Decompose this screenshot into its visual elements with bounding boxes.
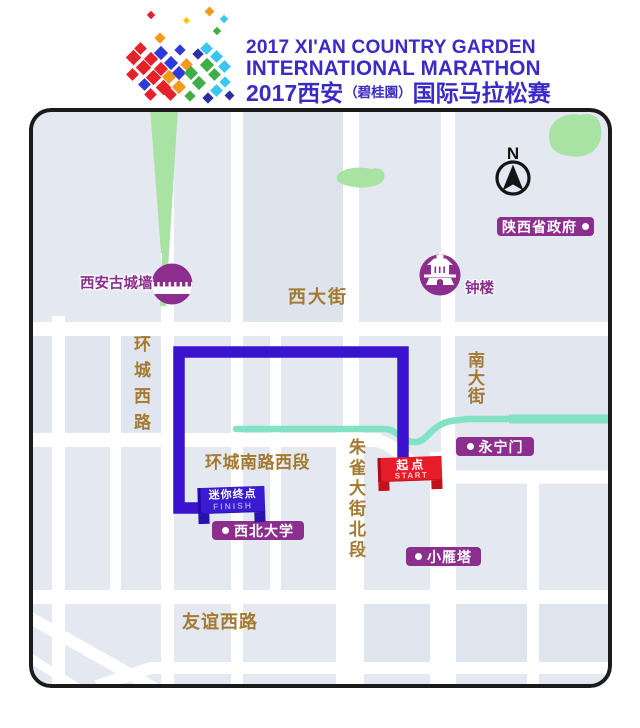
course-map: N xyxy=(29,108,612,688)
logo-diamond xyxy=(174,44,185,55)
park-blob-large xyxy=(549,114,601,157)
badge-label: 陕西省政府 xyxy=(502,217,577,237)
logo-diamond xyxy=(154,32,165,43)
title-cn-sponsor: （碧桂園） xyxy=(344,81,412,105)
logo-diamond xyxy=(220,15,228,23)
street-label-huancheng-xilu: 环城西路 xyxy=(128,335,153,439)
logo-diamond xyxy=(210,50,223,63)
street-label-youyi-xilu: 友谊西路 xyxy=(182,608,258,634)
finish-marker: 迷你终点 FINISH xyxy=(197,486,265,525)
poi-label-city-wall: 西安古城墙 xyxy=(80,272,153,293)
logo-diamond xyxy=(205,7,215,17)
start-marker-leg xyxy=(431,480,442,489)
logo-diamond xyxy=(210,84,223,97)
finish-marker-leg xyxy=(254,512,265,522)
logo-diamond xyxy=(213,27,221,35)
title-chinese: 2017西安（碧桂園）国际马拉松赛 xyxy=(246,81,551,105)
compass-n-label: N xyxy=(507,144,519,163)
title-cn-main: 2017西安 xyxy=(246,81,343,105)
map-canvas: N xyxy=(29,108,612,688)
logo-diamond xyxy=(126,68,139,81)
event-title: 2017 XI'AN COUNTRY GARDEN INTERNATIONAL … xyxy=(246,37,551,105)
poster: 2017 XI'AN COUNTRY GARDEN INTERNATIONAL … xyxy=(0,0,640,728)
title-english-line1: 2017 XI'AN COUNTRY GARDEN xyxy=(246,37,545,58)
logo-diamond xyxy=(219,76,230,87)
street-label-huancheng-nanlu: 环城南路西段 xyxy=(205,448,310,473)
location-dot xyxy=(222,527,229,534)
location-dot xyxy=(415,553,422,560)
title-english-line2: INTERNATIONAL MARATHON xyxy=(246,58,545,79)
logo-diamond xyxy=(192,76,206,90)
location-dot xyxy=(582,223,589,230)
finish-marker-leg xyxy=(198,514,209,524)
title-cn-tail: 国际马拉松赛 xyxy=(413,81,551,105)
logo-diamond xyxy=(183,17,190,24)
badge-yongningmen: 永宁门 xyxy=(456,437,534,456)
street-label-zhuque-dajie: 朱雀大街北段 xyxy=(343,438,368,561)
event-logo xyxy=(118,6,240,106)
logo-diamond xyxy=(184,90,195,101)
logo-diamond xyxy=(147,11,155,19)
badge-label: 小雁塔 xyxy=(427,547,472,567)
logo-diamond xyxy=(218,60,231,73)
logo-diamond xyxy=(225,91,235,101)
badge-shaanxi-provincial-government: 陕西省政府 xyxy=(497,217,594,236)
logo-diamond xyxy=(208,68,221,81)
street-label-xidajie: 西大街 xyxy=(288,283,348,309)
badge-label: 永宁门 xyxy=(479,437,524,457)
logo-diamond xyxy=(144,88,157,101)
start-marker-leg xyxy=(378,482,389,491)
start-marker: 起点 START xyxy=(377,456,442,491)
logo-diamond xyxy=(202,92,213,103)
badge-xiaoyanta: 小雁塔 xyxy=(406,547,481,566)
park-blob-small xyxy=(337,168,385,188)
poi-label-bell-tower: 钟楼 xyxy=(465,277,494,298)
street-label-nandajie: 南大街 xyxy=(462,351,487,405)
location-dot xyxy=(467,443,474,450)
